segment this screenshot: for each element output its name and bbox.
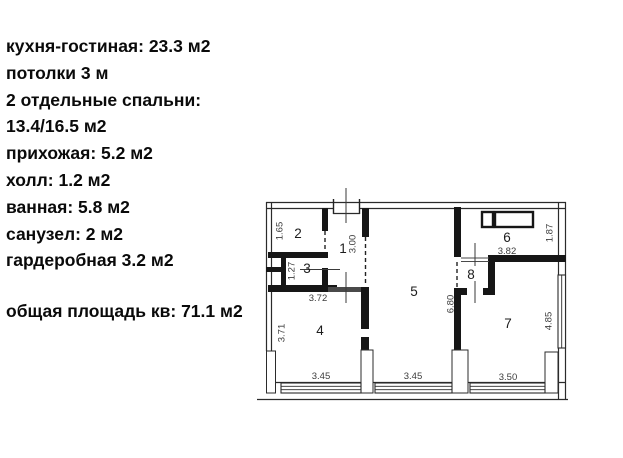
- room-label-6: 6: [503, 230, 511, 245]
- window-room5: [375, 383, 452, 393]
- dim-label-3-00: 3.00: [348, 235, 359, 254]
- room-label-5: 5: [410, 284, 418, 299]
- dim-label-3-71: 3.71: [277, 324, 288, 343]
- door-openings-dashed: [325, 231, 457, 288]
- dim-label-6-80: 6.80: [446, 295, 457, 314]
- room-label-1: 1: [339, 241, 347, 256]
- dim-label-1-65: 1.65: [275, 222, 286, 241]
- entrance-door-mark: [333, 188, 360, 223]
- floor-plan-drawing: 2 1 3 4 5 6 7 8 1.65 1.27 3.00 3.72 3.71…: [0, 0, 623, 458]
- interior-walls: [266, 207, 566, 350]
- window-room4: [281, 383, 361, 393]
- room-label-4: 4: [316, 323, 324, 338]
- room-label-3: 3: [303, 261, 311, 276]
- room6-fixtures: [482, 212, 533, 227]
- duct-box: [482, 212, 493, 227]
- window-room7-right: [558, 275, 566, 348]
- dim-label-3-82: 3.82: [498, 246, 517, 257]
- apartment-listing-image: кухня-гостиная: 23.3 м2 потолки 3 м 2 от…: [0, 0, 623, 458]
- duct-divider: [266, 267, 281, 272]
- dim-label-1-27: 1.27: [287, 262, 298, 281]
- dim-label-3-45-mid: 3.45: [404, 371, 423, 382]
- dim-label-1-87: 1.87: [545, 224, 556, 243]
- dim-label-4-85: 4.85: [544, 312, 555, 331]
- room-label-8: 8: [467, 267, 475, 282]
- dim-label-3-50: 3.50: [499, 372, 518, 383]
- cabinet-box: [495, 212, 533, 227]
- dim-label-3-45-left: 3.45: [312, 371, 331, 382]
- dimension-labels: 1.65 1.27 3.00 3.72 3.71 3.45 3.45 6.80 …: [275, 222, 556, 383]
- room-label-7: 7: [504, 316, 512, 331]
- room-label-2: 2: [294, 226, 302, 241]
- dim-label-3-72: 3.72: [309, 293, 328, 304]
- window-room7-bottom: [470, 383, 545, 393]
